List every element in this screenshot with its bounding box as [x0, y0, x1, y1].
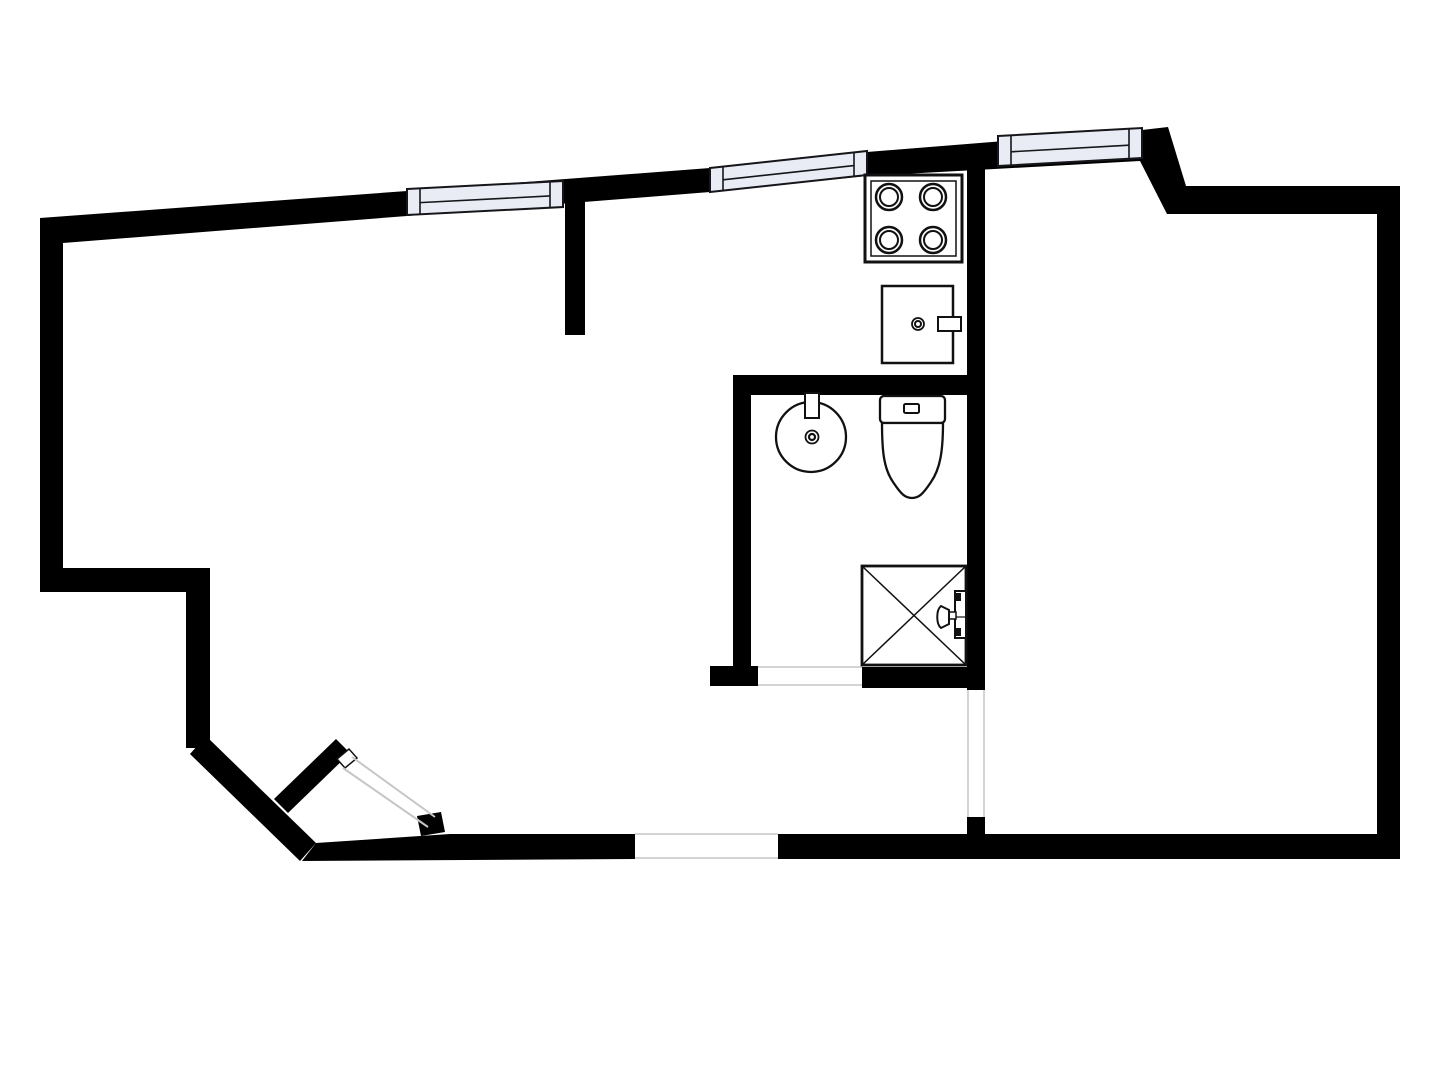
- shower-handle: [937, 606, 949, 628]
- toilet-flush-button: [904, 404, 919, 413]
- floor-plan-page: [0, 0, 1440, 1080]
- bathroom-top-wall: [733, 375, 985, 395]
- hall-partition-wall-upper: [967, 150, 985, 690]
- entrance-door-swing-line-1: [352, 757, 435, 817]
- windows-layer: [407, 128, 1142, 215]
- floor-plan: [0, 0, 1440, 1080]
- right-exterior-wall: [1377, 186, 1400, 859]
- left-exterior-wall: [40, 218, 63, 592]
- entrance_door-layer: [274, 739, 435, 827]
- bottom-wall-right: [778, 834, 1400, 859]
- kitchen-divider-wall: [565, 186, 585, 335]
- left-step-horizontal-wall: [40, 568, 210, 592]
- kitchen-sink-faucet-tab: [938, 317, 961, 331]
- bottom-wall-left: [302, 834, 635, 861]
- shower-mixer-top-block: [955, 593, 961, 601]
- openings-layer: [635, 664, 986, 861]
- walls-layer: [40, 127, 1400, 861]
- entrance-door-leaf: [274, 739, 350, 813]
- window-1-frame: [407, 181, 563, 215]
- hall-door-opening: [966, 690, 986, 817]
- bathroom-door-jamb-stub: [710, 666, 758, 686]
- bathroom-bottom-wall: [862, 667, 985, 688]
- entrance-door-swing-line-2: [343, 768, 428, 827]
- window-1: [407, 181, 563, 215]
- bathroom-left-wall: [733, 375, 751, 670]
- kitchen-sink-drain-outer: [912, 318, 924, 330]
- terrace-opening: [635, 832, 778, 861]
- entrance-door-jamb-stub: [417, 812, 445, 836]
- washbasin-tap: [805, 393, 819, 418]
- washbasin-drain-outer: [806, 431, 819, 444]
- left-step-vertical-wall: [186, 568, 210, 748]
- shower-mixer-bottom-block: [955, 628, 961, 636]
- toilet-bowl: [882, 423, 943, 498]
- hall-partition-wall-stub: [967, 817, 985, 859]
- window-2: [710, 151, 867, 192]
- window-2-frame: [710, 151, 867, 192]
- fixtures-layer: [776, 175, 966, 665]
